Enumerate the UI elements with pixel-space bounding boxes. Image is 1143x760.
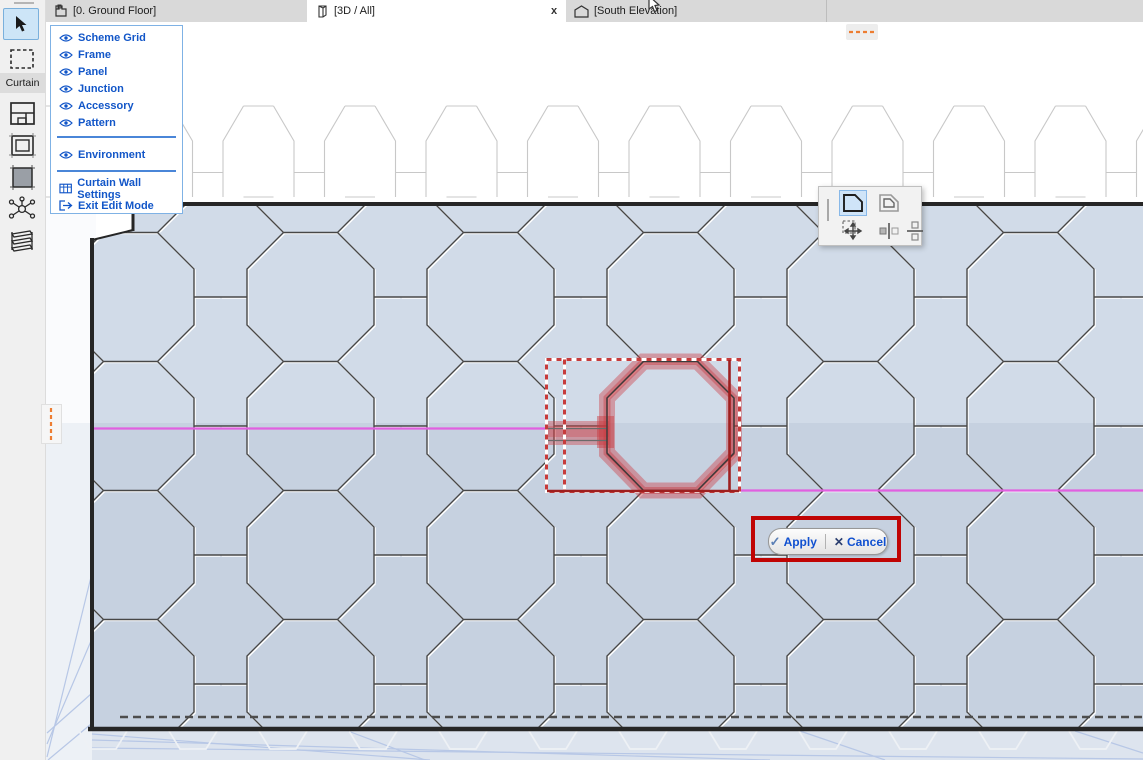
menu-item-curtain-wall-settings[interactable]: Curtain Wall Settings: [51, 180, 182, 197]
canvas-edge-marker[interactable]: [41, 404, 62, 444]
eye-icon: [59, 84, 73, 94]
elevation-icon: [574, 5, 589, 18]
x-icon: ✕: [834, 535, 844, 549]
marquee-tool[interactable]: [7, 45, 37, 73]
env-left-strip-upper: [46, 200, 96, 423]
menu-label: Environment: [78, 149, 145, 161]
menu-item-exit-edit-mode[interactable]: Exit Edit Mode: [51, 197, 182, 214]
apply-label: Apply: [784, 535, 817, 549]
menu-label: Junction: [78, 83, 124, 95]
palette-drag-handle[interactable]: [827, 199, 829, 221]
settings-table-icon: [59, 183, 72, 194]
eye-icon: [59, 101, 73, 111]
toolbox-handle[interactable]: [14, 2, 34, 4]
check-icon: ✓: [770, 534, 781, 550]
tab-bar: [0. Ground Floor] [3D / All] x [South El…: [46, 0, 1143, 22]
curtain-wall-toolbox: Curtain: [0, 0, 46, 760]
menu-label: Panel: [78, 66, 107, 78]
split-vertical-icon[interactable]: [875, 218, 903, 244]
menu-item-junction[interactable]: Junction: [51, 80, 182, 97]
mouse-cursor: [645, 0, 663, 21]
panel-offset-icon[interactable]: [875, 190, 903, 216]
marquee-icon: [9, 48, 35, 70]
3d-box-icon: [315, 4, 329, 18]
eye-icon: [59, 33, 73, 43]
tab-3d-all[interactable]: [3D / All]: [307, 0, 566, 22]
tab-label: [South Elevation]: [594, 5, 677, 17]
env-left-strip-lower: [46, 423, 96, 760]
menu-item-panel[interactable]: Panel: [51, 63, 182, 80]
eye-icon: [59, 67, 73, 77]
menu-label: Frame: [78, 49, 111, 61]
menu-item-pattern[interactable]: Pattern: [51, 114, 182, 131]
junction-tool[interactable]: [7, 195, 37, 223]
menu-item-scheme-grid[interactable]: Scheme Grid: [51, 29, 182, 46]
tab-label: [3D / All]: [334, 5, 375, 17]
accessory-icon: [8, 228, 36, 254]
junction-icon: [8, 196, 36, 222]
accessory-tool[interactable]: [7, 227, 37, 255]
eye-icon: [59, 50, 73, 60]
curtain-wall-display-menu: Scheme Grid Frame Panel Junction Accesso…: [50, 25, 183, 214]
panel-shape-icon[interactable]: [839, 190, 867, 216]
arrow-cursor-icon: [13, 15, 29, 33]
collapsed-palette-chip[interactable]: [846, 24, 878, 40]
select-arrow-tool[interactable]: [3, 8, 39, 40]
menu-item-accessory[interactable]: Accessory: [51, 97, 182, 114]
floor-plan-icon: [54, 4, 68, 18]
menu-label: Accessory: [78, 100, 134, 112]
tab-south-elevation[interactable]: [South Elevation]: [566, 0, 826, 22]
menu-divider: [57, 136, 176, 138]
menu-item-frame[interactable]: Frame: [51, 46, 182, 63]
menu-label: Scheme Grid: [78, 32, 146, 44]
frame-tool[interactable]: [7, 131, 37, 159]
tab-separator: [826, 0, 827, 22]
frame-icon: [9, 133, 36, 158]
menu-divider: [57, 170, 176, 172]
menu-label: Pattern: [78, 117, 116, 129]
button-divider: [825, 534, 826, 549]
split-horizontal-icon[interactable]: [901, 218, 929, 244]
scheme-grid-tool[interactable]: [7, 99, 37, 127]
apply-cancel-bar: ✓ Apply ✕ Cancel: [768, 528, 888, 555]
cancel-button[interactable]: ✕ Cancel: [834, 535, 886, 549]
pet-palette: [818, 186, 922, 246]
cancel-label: Cancel: [847, 535, 886, 549]
curtain-tool-label[interactable]: Curtain: [0, 73, 45, 93]
tab-ground-floor[interactable]: [0. Ground Floor]: [46, 0, 307, 22]
menu-item-environment[interactable]: Environment: [51, 146, 182, 163]
menu-label: Exit Edit Mode: [78, 200, 154, 212]
tab-close-icon[interactable]: x: [547, 4, 561, 18]
eye-icon: [59, 118, 73, 128]
scheme-grid-icon: [9, 101, 36, 126]
panel-tool[interactable]: [7, 163, 37, 191]
exit-icon: [59, 200, 73, 211]
eye-icon: [59, 150, 73, 160]
move-marquee-icon[interactable]: [839, 218, 867, 244]
panel-icon: [9, 165, 36, 190]
tab-label: [0. Ground Floor]: [73, 5, 156, 17]
apply-button[interactable]: ✓ Apply: [770, 534, 817, 550]
